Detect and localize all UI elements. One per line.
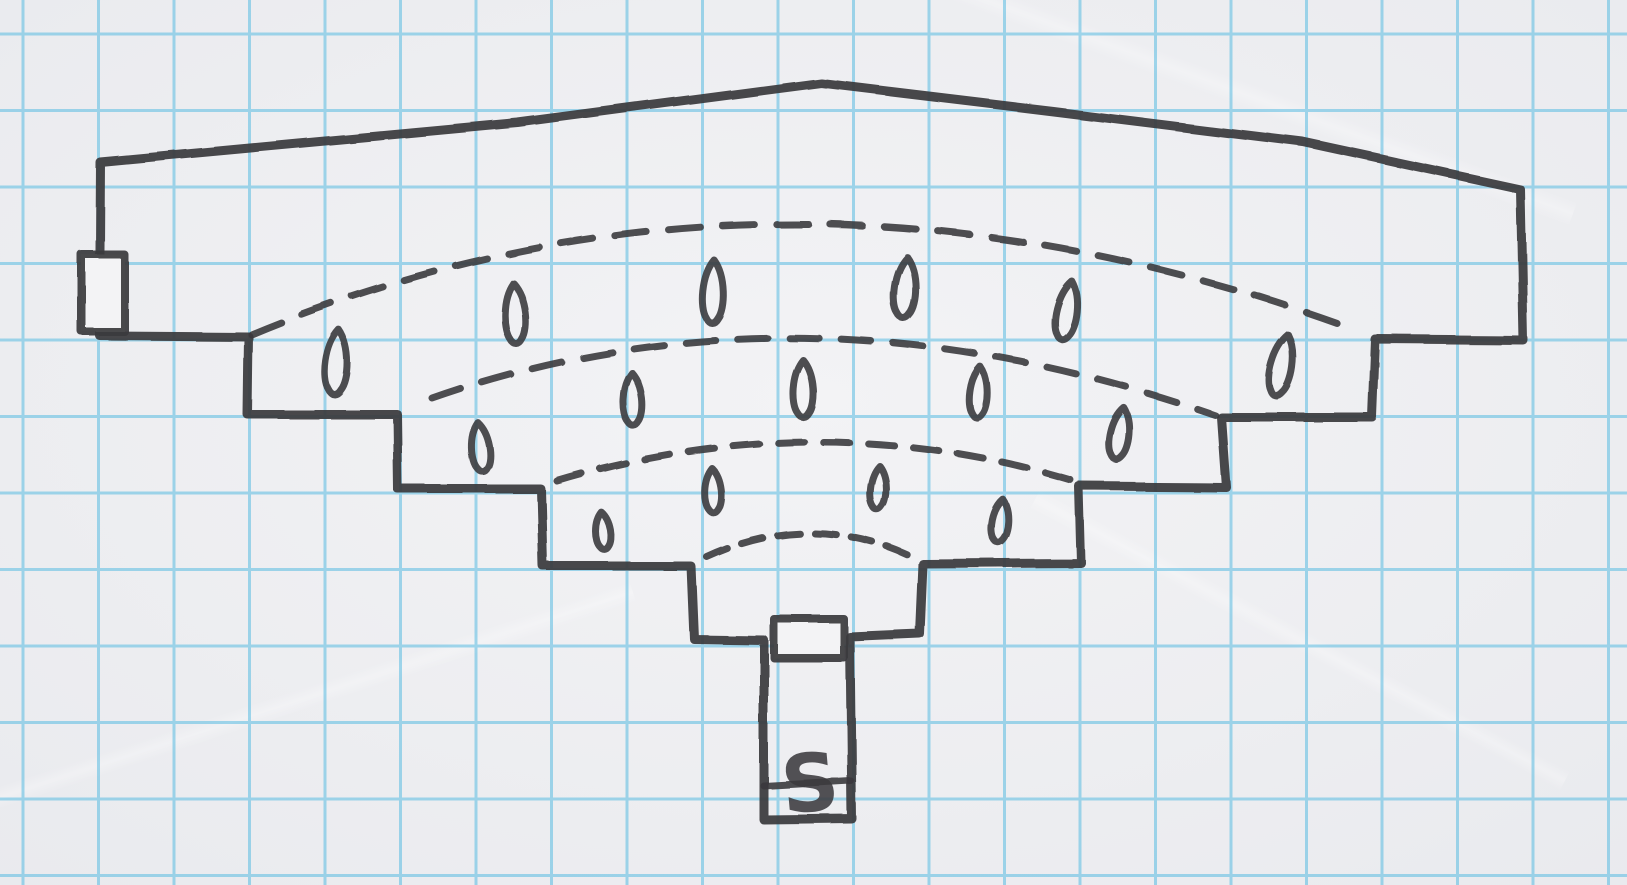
south-door [774, 619, 844, 658]
scanned-graph-paper-map: S [0, 0, 1627, 885]
west-door [81, 254, 124, 331]
stairs-label: S [777, 735, 843, 833]
map-drawing: S [0, 0, 1627, 885]
